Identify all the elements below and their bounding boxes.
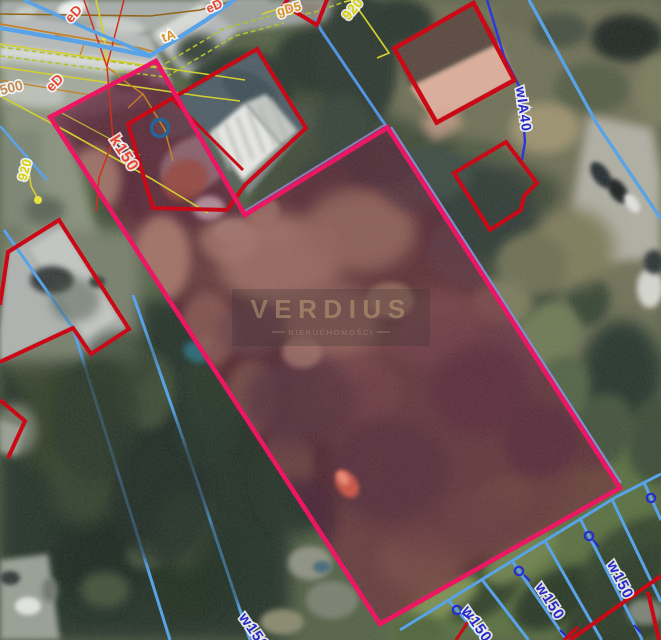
svg-text:VERDIUS: VERDIUS: [250, 294, 411, 324]
svg-text:NIERUCHOMOŚCI: NIERUCHOMOŚCI: [288, 328, 373, 337]
